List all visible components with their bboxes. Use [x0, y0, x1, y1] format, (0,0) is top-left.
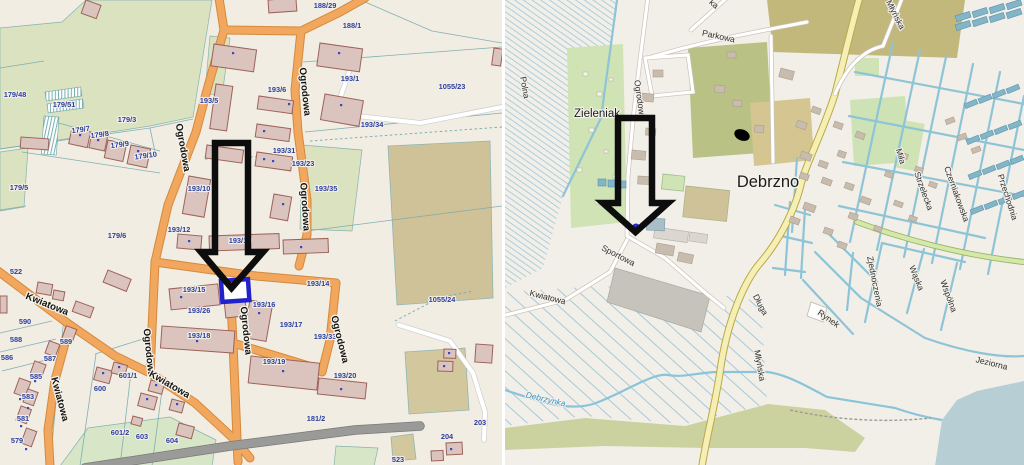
building [492, 48, 502, 66]
right-map-label-area: Zieleniak [574, 108, 620, 120]
right-map-panel[interactable]: PolnakaParkowaOgrodowaZieleniakDebrznoSp… [505, 0, 1024, 465]
building-dot [300, 246, 302, 248]
building [732, 100, 741, 107]
left-map-label-parcel: 523 [392, 455, 404, 464]
building-dot [79, 134, 81, 136]
building [631, 150, 646, 160]
left-map-label-parcel: 179/3 [118, 115, 137, 124]
building-dot [258, 312, 260, 314]
building [446, 442, 463, 455]
left-map-label-parcel: 179/48 [4, 90, 27, 99]
left-map-panel[interactable]: 179/48179/51179/3179/7179/8179/9179/1017… [0, 0, 502, 465]
left-map-label-parcel: 1055/23 [439, 82, 466, 91]
building-dot [188, 240, 190, 242]
building-dot [102, 372, 104, 374]
building [714, 85, 725, 93]
left-map-label-parcel: 603 [136, 432, 148, 441]
building [0, 296, 7, 313]
shed [604, 150, 608, 153]
building-dot [196, 340, 198, 342]
left-map-label-parcel: 193/5 [200, 96, 219, 105]
right-map-label-place: Debrzno [737, 173, 799, 191]
building [475, 344, 493, 363]
building-dot [272, 160, 274, 162]
left-map-label-parcel: 193/35 [315, 184, 338, 193]
building [283, 238, 328, 254]
left-map-label-parcel: 601/1 [119, 371, 138, 380]
building-dot [288, 103, 290, 105]
building [638, 176, 650, 185]
left-map-label-parcel: 586 [1, 353, 13, 362]
left-map-label-parcel: 1055/24 [429, 295, 457, 304]
building [36, 282, 53, 295]
left-map-label-parcel: 179/51 [53, 100, 76, 109]
building-dot [146, 398, 148, 400]
shed [609, 78, 613, 81]
left-map-label-parcel: 193/16 [253, 300, 276, 309]
left-map-label-parcel: 581 [17, 414, 29, 423]
left-map-label-parcel: 589 [60, 337, 72, 346]
building-dot [448, 352, 450, 354]
building-dot [155, 384, 157, 386]
shed [583, 72, 588, 76]
left-map-label-parcel: 181/2 [307, 414, 326, 423]
left-map-label-parcel: 600 [94, 384, 106, 393]
left-map-label-parcel: 601/2 [111, 428, 130, 437]
left-map-label-parcel: 193/19 [263, 357, 286, 366]
building [52, 290, 64, 301]
left-map-label-parcel: 179/6 [108, 231, 127, 240]
building-dot [263, 158, 265, 160]
shed [589, 128, 594, 132]
left-map-label-parcel: 193/12 [168, 225, 191, 234]
building [20, 137, 49, 150]
left-map-label-parcel: 193/31 [273, 146, 296, 155]
map-comparison-view: 179/48179/51179/3179/7179/8179/9179/1017… [0, 0, 1024, 465]
building-dot [27, 407, 29, 409]
teal-building [598, 179, 606, 186]
building [268, 0, 297, 13]
building-dot [282, 203, 284, 205]
left-map-label-parcel: 588 [10, 335, 22, 344]
left-map-label-parcel: 604 [166, 436, 179, 445]
building-dot [232, 52, 234, 54]
left-map-label-parcel: 579 [11, 436, 23, 445]
left-map-label-parcel: 590 [19, 317, 31, 326]
left-map-label-parcel: 522 [10, 267, 22, 276]
left-map-label-parcel: 193/23 [292, 159, 315, 168]
building [727, 52, 736, 58]
left-map-label-parcel: 188/1 [343, 21, 362, 30]
building-dot [20, 425, 22, 427]
building-dot [263, 130, 265, 132]
left-map-label-parcel: 179/5 [10, 183, 29, 192]
left-map-label-parcel: 193/20 [334, 371, 357, 380]
left-map-label-parcel: 193/10 [188, 184, 211, 193]
left-map-label-parcel: 193/15 [183, 285, 206, 294]
left-map-label-parcel: 193/34 [361, 120, 384, 129]
left-map-label-parcel: 193/17 [280, 320, 303, 329]
building-dot [25, 448, 27, 450]
building [270, 194, 292, 221]
building [431, 450, 444, 461]
building [438, 361, 453, 372]
building-dot [340, 388, 342, 390]
building-dot [340, 104, 342, 106]
left-map-label-parcel: 585 [30, 372, 42, 381]
building-dot [118, 366, 120, 368]
left-map-label-parcel: 188/29 [314, 1, 337, 10]
left-map-label-parcel: 193/14 [307, 279, 330, 288]
building-dot [176, 403, 178, 405]
building-dot [443, 365, 445, 367]
left-map-label-parcel: 587 [44, 354, 56, 363]
building [754, 125, 764, 133]
building-dot [450, 448, 452, 450]
left-map-label-parcel: 204 [441, 432, 454, 441]
left-map-label-parcel: 193/26 [188, 306, 211, 315]
left-map-label-parcel: 203 [474, 418, 486, 427]
left-map-label-parcel: 583 [22, 392, 34, 401]
left-map-label-parcel: 193/18 [188, 331, 211, 340]
building-dot [282, 370, 284, 372]
left-map-label-parcel: 193/1 [341, 74, 360, 83]
left-map-label-parcel: 193/6 [268, 85, 287, 94]
building-dot [338, 52, 340, 54]
shed [577, 168, 582, 172]
building [653, 70, 663, 77]
shed [597, 92, 602, 96]
building-dot [180, 296, 182, 298]
